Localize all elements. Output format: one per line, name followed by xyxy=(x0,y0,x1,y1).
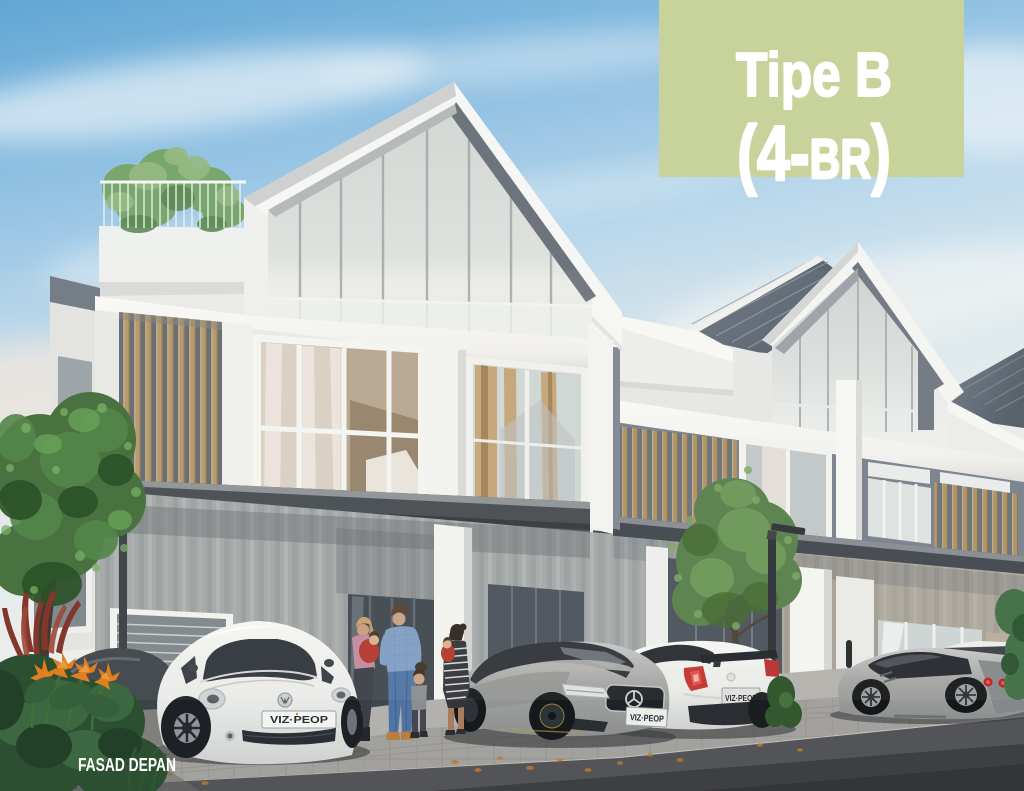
svg-text:VIZ·PEOP: VIZ·PEOP xyxy=(270,715,328,726)
svg-text:VIZ·PEOP: VIZ·PEOP xyxy=(630,712,664,724)
svg-text:FASAD DEPAN: FASAD DEPAN xyxy=(78,755,176,775)
svg-text:Tipe B: Tipe B xyxy=(736,41,892,110)
